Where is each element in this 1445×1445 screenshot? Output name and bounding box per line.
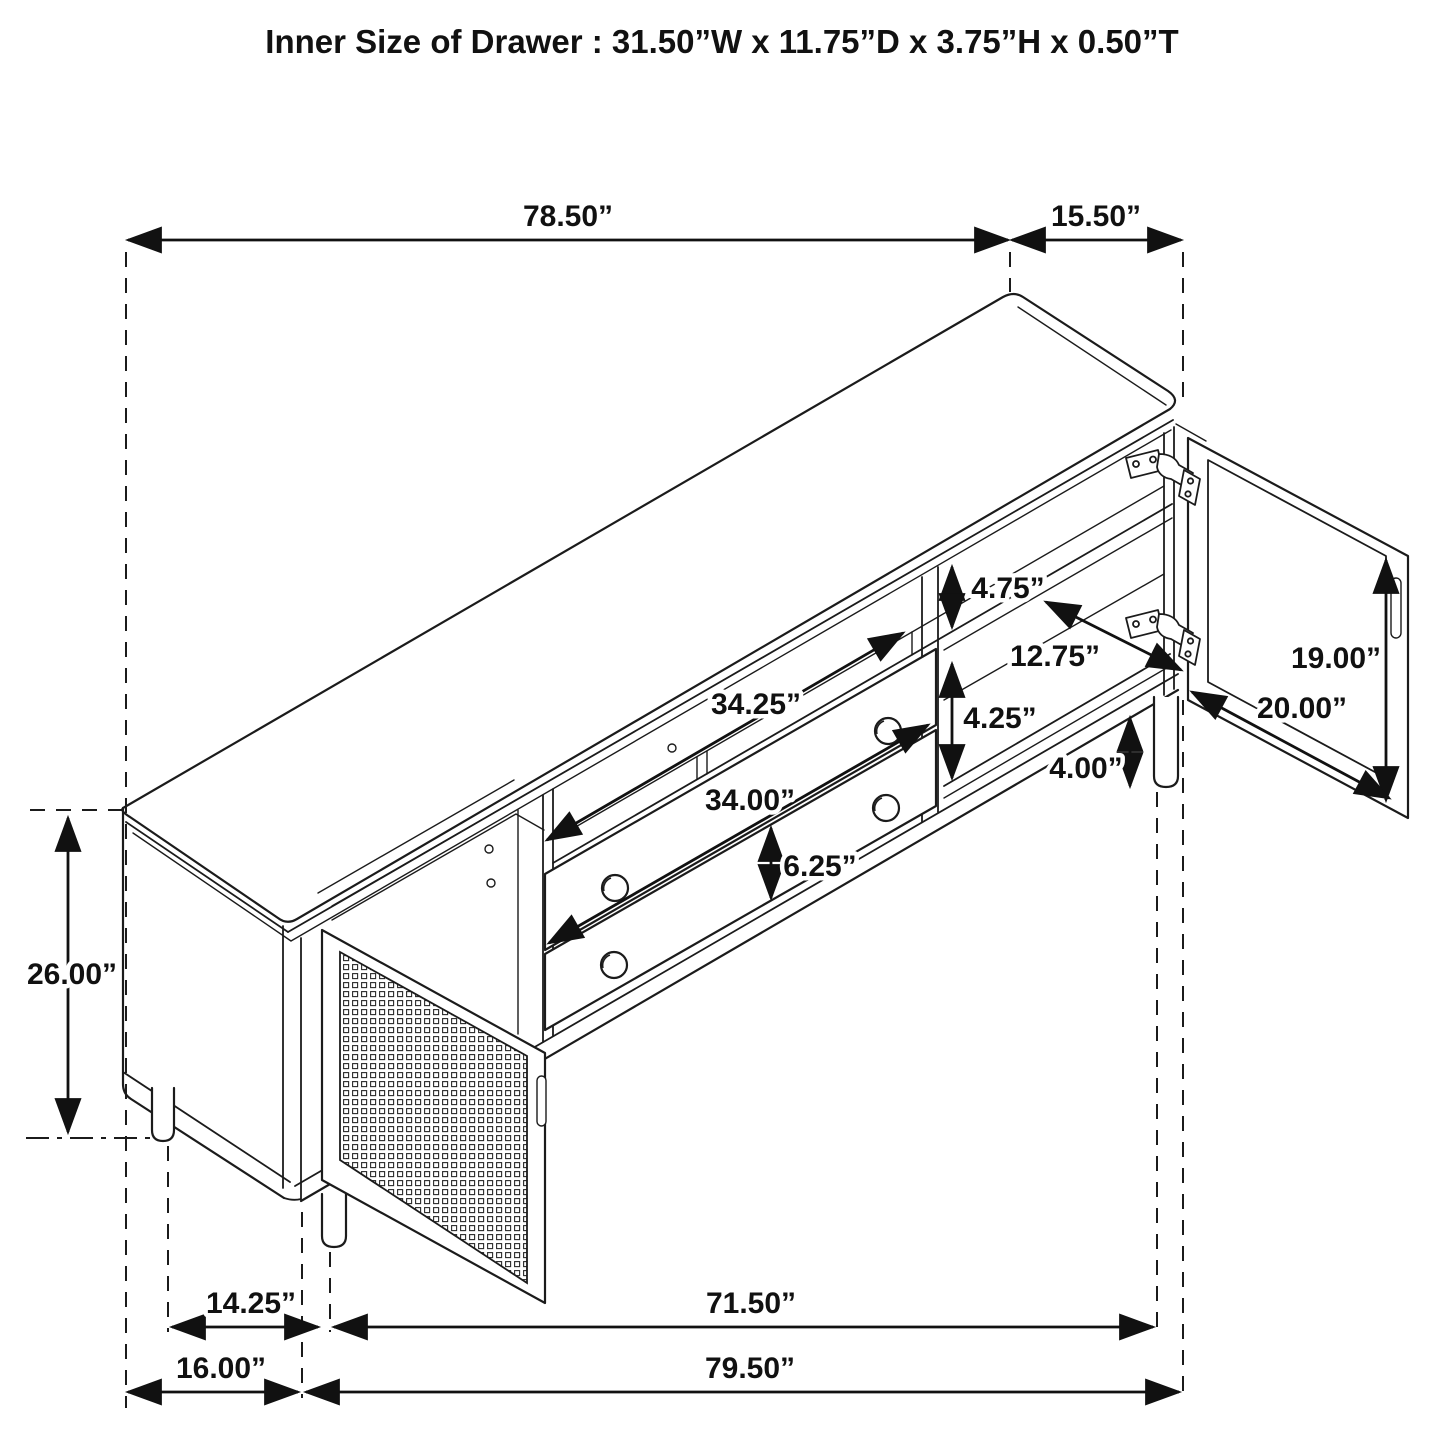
leg-front-right <box>1154 697 1178 787</box>
leg-front-left <box>322 1194 346 1247</box>
dim-label: 6.25” <box>783 850 856 883</box>
dim-label: 4.00” <box>1049 752 1122 785</box>
dim-label: 19.00” <box>1291 642 1381 675</box>
dim-base-width: 71.50” <box>334 1287 1153 1327</box>
dim-top-width: 78.50” <box>128 200 1008 240</box>
dim-overall-height: 26.00” <box>27 818 117 1132</box>
drawer-knob <box>601 952 627 978</box>
right-door-frame <box>1188 438 1408 818</box>
diagram-page: Inner Size of Drawer : 31.50”W x 11.75”D… <box>0 0 1445 1445</box>
dim-label: 16.00” <box>176 1352 266 1385</box>
furniture-dimension-diagram: Inner Size of Drawer : 31.50”W x 11.75”D… <box>0 0 1445 1445</box>
shelf-pin-hole <box>487 879 495 887</box>
dim-label: 71.50” <box>706 1287 796 1320</box>
dim-label: 20.00” <box>1257 692 1347 725</box>
cane-door-handle-notch <box>537 1076 546 1126</box>
dim-side-leg-spacing: 14.25” <box>172 1287 318 1327</box>
drawer-knob <box>602 875 628 901</box>
dim-overall-base-width: 79.50” <box>306 1352 1179 1392</box>
dim-label: 79.50” <box>705 1352 795 1385</box>
leg-back-left <box>152 1088 174 1141</box>
left-corner-column-front <box>284 938 301 1200</box>
dim-compartment-opening-height: 4.25” <box>952 664 1037 778</box>
dim-label: 78.50” <box>523 200 613 233</box>
dim-label: 4.25” <box>963 702 1036 735</box>
dim-label: 34.00” <box>705 784 795 817</box>
dim-label: 12.75” <box>1010 640 1100 673</box>
right-door-handle-groove <box>1391 578 1401 638</box>
dim-label: 15.50” <box>1051 200 1141 233</box>
shelf-pin-hole <box>485 845 493 853</box>
right-door <box>1188 438 1408 818</box>
dim-label: 4.75” <box>971 572 1044 605</box>
dim-top-side-depth: 15.50” <box>1012 200 1181 240</box>
dim-label: 34.25” <box>711 688 801 721</box>
drawer-knob <box>873 795 899 821</box>
left-panel-rail-top <box>123 1072 290 1182</box>
left-cane-door <box>322 930 546 1303</box>
drawer-knob <box>875 718 901 744</box>
dim-label: 14.25” <box>206 1287 296 1320</box>
dim-side-depth-bottom: 16.00” <box>128 1352 298 1392</box>
dim-leg-height: 4.00” <box>1049 718 1130 786</box>
page-title: Inner Size of Drawer : 31.50”W x 11.75”D… <box>265 23 1178 60</box>
dim-label: 26.00” <box>27 958 117 991</box>
shelf-pin-hole <box>668 744 676 752</box>
